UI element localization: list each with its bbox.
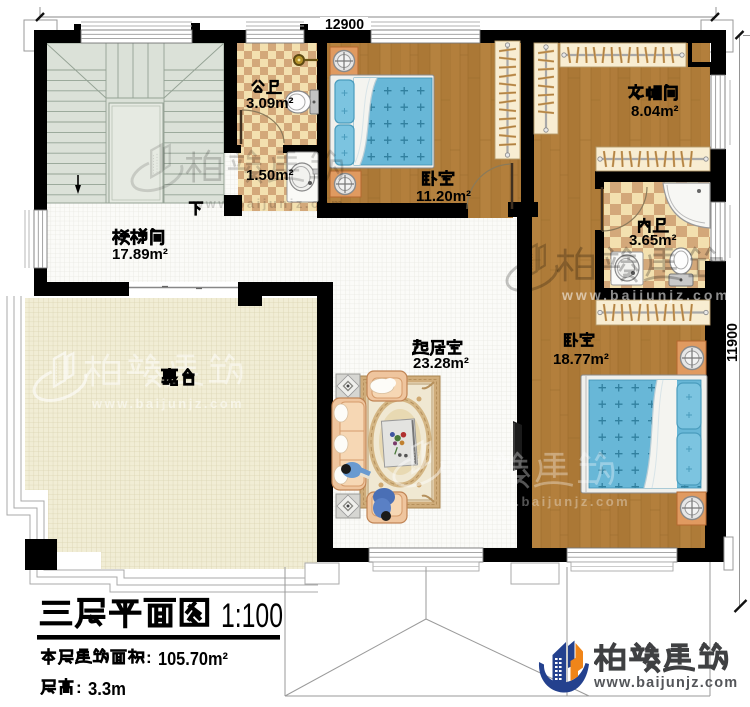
svg-text:www.baijunjz.com: www.baijunjz.com — [192, 196, 345, 211]
svg-text:105.70m²: 105.70m² — [158, 649, 228, 669]
svg-text:3.3m: 3.3m — [88, 679, 126, 699]
svg-text:12900: 12900 — [325, 16, 364, 33]
svg-text:www.baijunjz.com: www.baijunjz.com — [477, 494, 630, 509]
svg-text:1.50m²: 1.50m² — [246, 167, 294, 184]
svg-text:11.20m²: 11.20m² — [416, 188, 471, 205]
svg-text:www.baijunjz.com: www.baijunjz.com — [593, 675, 738, 691]
svg-text:3.09m²: 3.09m² — [246, 95, 294, 112]
svg-text:3.65m²: 3.65m² — [629, 232, 677, 249]
svg-text:23.28m²: 23.28m² — [413, 355, 469, 372]
svg-text:17.89m²: 17.89m² — [112, 246, 168, 263]
svg-text:18.77m²: 18.77m² — [553, 351, 609, 368]
svg-text:11900: 11900 — [724, 323, 741, 362]
svg-text::: : — [76, 678, 82, 697]
svg-text:www.baijunjz.com: www.baijunjz.com — [561, 287, 731, 303]
svg-text:8.04m²: 8.04m² — [631, 103, 679, 120]
svg-text::: : — [146, 648, 152, 667]
svg-text:1:100: 1:100 — [221, 597, 283, 635]
svg-text:www.baijunjz.com: www.baijunjz.com — [91, 396, 244, 411]
